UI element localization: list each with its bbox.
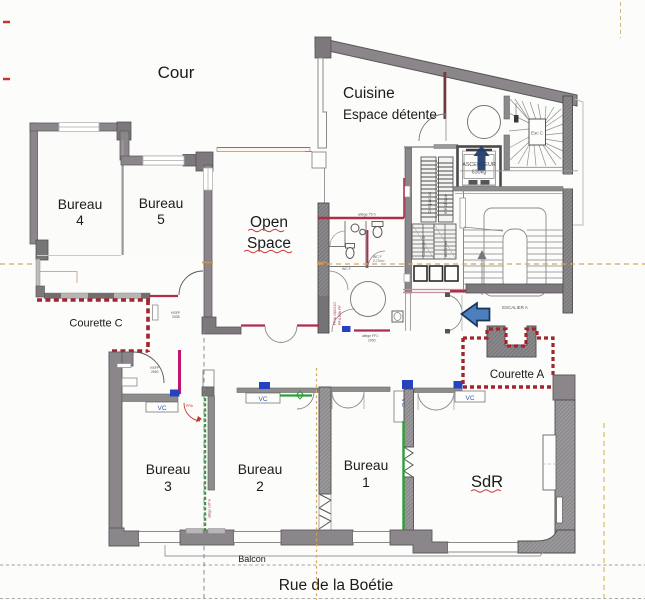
svg-text:PFi150h FF: PFi150h FF <box>338 304 342 325</box>
svg-text:2: 2 <box>256 479 264 494</box>
svg-text:4: 4 <box>76 213 84 228</box>
svg-text:2650: 2650 <box>151 370 159 374</box>
svg-text:Open: Open <box>250 214 288 231</box>
svg-text:VC: VC <box>465 395 474 402</box>
svg-text:Bureau: Bureau <box>146 462 191 477</box>
svg-text:Bureau: Bureau <box>58 197 103 212</box>
svg-text:Bureau: Bureau <box>139 196 184 211</box>
svg-text:Space: Space <box>247 235 291 252</box>
svg-text:Courette B: Courette B <box>421 236 426 257</box>
svg-text:allège 137 H: allège 137 H <box>208 498 212 518</box>
svg-text:2008: 2008 <box>172 315 180 319</box>
svg-text:allège FF1: allège FF1 <box>362 334 378 338</box>
svg-text:Cuisine: Cuisine <box>343 85 395 102</box>
svg-text:Bureau: Bureau <box>344 458 389 473</box>
svg-text:SdR: SdR <box>471 473 503 491</box>
svg-text:Esc C: Esc C <box>531 131 543 136</box>
svg-text:Espace détente: Espace détente <box>343 107 437 122</box>
svg-text:PFib: PFib <box>186 404 193 408</box>
svg-text:1: 1 <box>362 475 370 490</box>
svg-text:3: 3 <box>164 479 172 494</box>
svg-text:Bureau: Bureau <box>238 462 283 477</box>
svg-text:2,73 m²: 2,73 m² <box>373 259 385 263</box>
svg-text:Courette A: Courette A <box>490 369 545 381</box>
svg-text:PFib 150/210: PFib 150/210 <box>333 302 337 325</box>
svg-text:WC F: WC F <box>342 267 351 271</box>
svg-text:Rue de la Boétie: Rue de la Boétie <box>279 577 394 594</box>
svg-text:Cour: Cour <box>158 63 195 82</box>
svg-text:allège 75 h: allège 75 h <box>358 213 376 217</box>
svg-text:2000: 2000 <box>368 339 376 343</box>
svg-text:VC: VC <box>258 396 267 403</box>
svg-text:métallique: métallique <box>443 193 448 214</box>
svg-text:ESCALIER A: ESCALIER A <box>502 305 528 310</box>
svg-text:archives: archives <box>443 240 448 257</box>
svg-text:Courette C: Courette C <box>69 318 122 330</box>
svg-text:Balcon: Balcon <box>238 554 266 564</box>
svg-text:Compactus: Compactus <box>427 191 432 214</box>
svg-text:5: 5 <box>157 212 165 227</box>
svg-text:VC: VC <box>157 405 166 412</box>
